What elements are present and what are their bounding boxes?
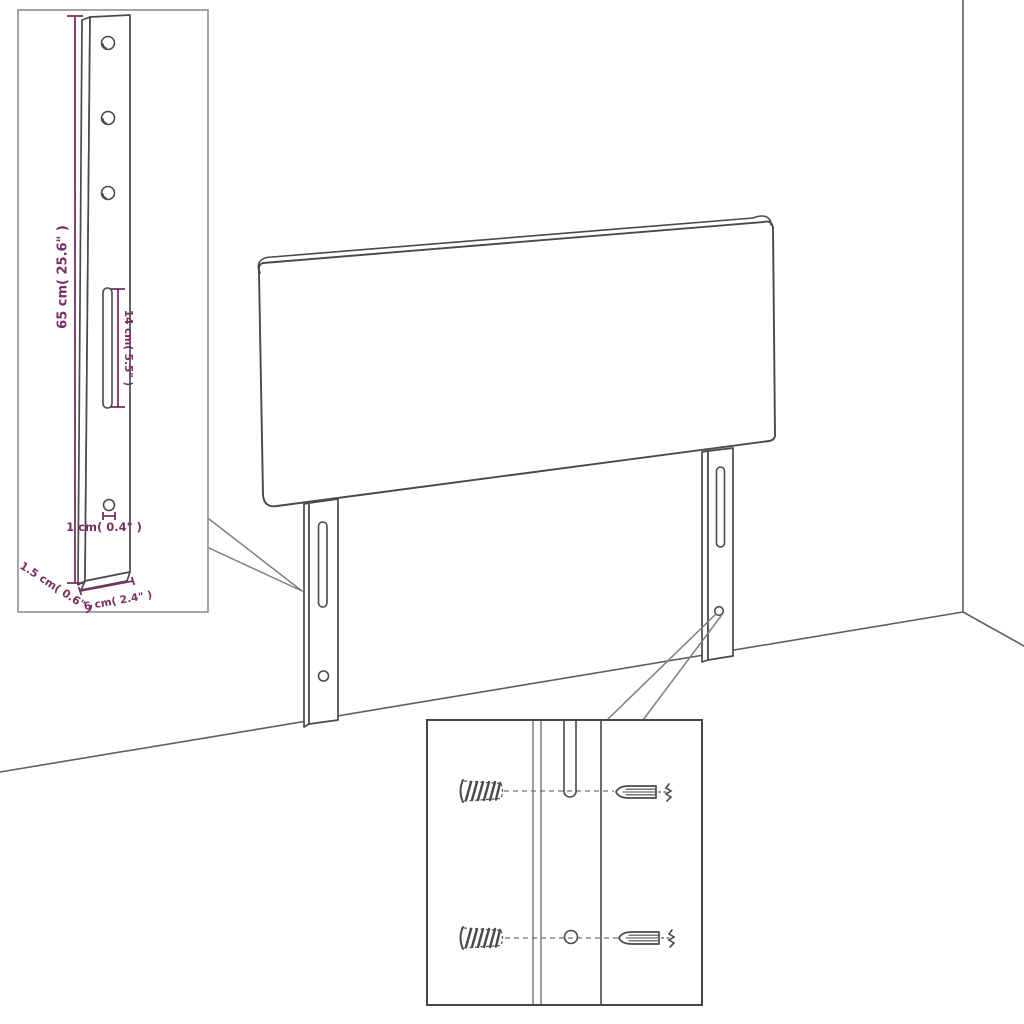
- callout-line-hole-left: [607, 614, 716, 720]
- headboard: [258, 216, 775, 727]
- dimension-slot-label: 14 cm( 5.5" ): [122, 310, 134, 386]
- headboard-left-leg: [304, 499, 338, 727]
- assembly-diagram-page: 65 cm( 25.6" ) 14 cm( 5.5" ) 1 cm( 0.4" …: [0, 0, 1024, 1024]
- callout-lines-left: [209, 519, 302, 591]
- headboard-assembly-diagram: 65 cm( 25.6" ) 14 cm( 5.5" ) 1 cm( 0.4" …: [0, 0, 1024, 1024]
- bracket-front-face: [85, 15, 130, 581]
- bracket-detail-inset: 65 cm( 25.6" ) 14 cm( 5.5" ) 1 cm( 0.4" …: [17, 10, 208, 616]
- left-leg-front-face: [309, 499, 338, 724]
- headboard-right-leg: [702, 448, 733, 662]
- dimension-hole-label: 1 cm( 0.4" ): [66, 520, 142, 534]
- callout-line-hole-right: [643, 616, 721, 720]
- floor-line-right: [963, 612, 1024, 646]
- headboard-panel: [259, 222, 775, 507]
- mounting-detail-inset: [427, 720, 702, 1005]
- dimension-height-label: 65 cm( 25.6" ): [56, 225, 71, 329]
- right-leg-side-face: [702, 451, 708, 662]
- bracket-drawing: [78, 15, 130, 590]
